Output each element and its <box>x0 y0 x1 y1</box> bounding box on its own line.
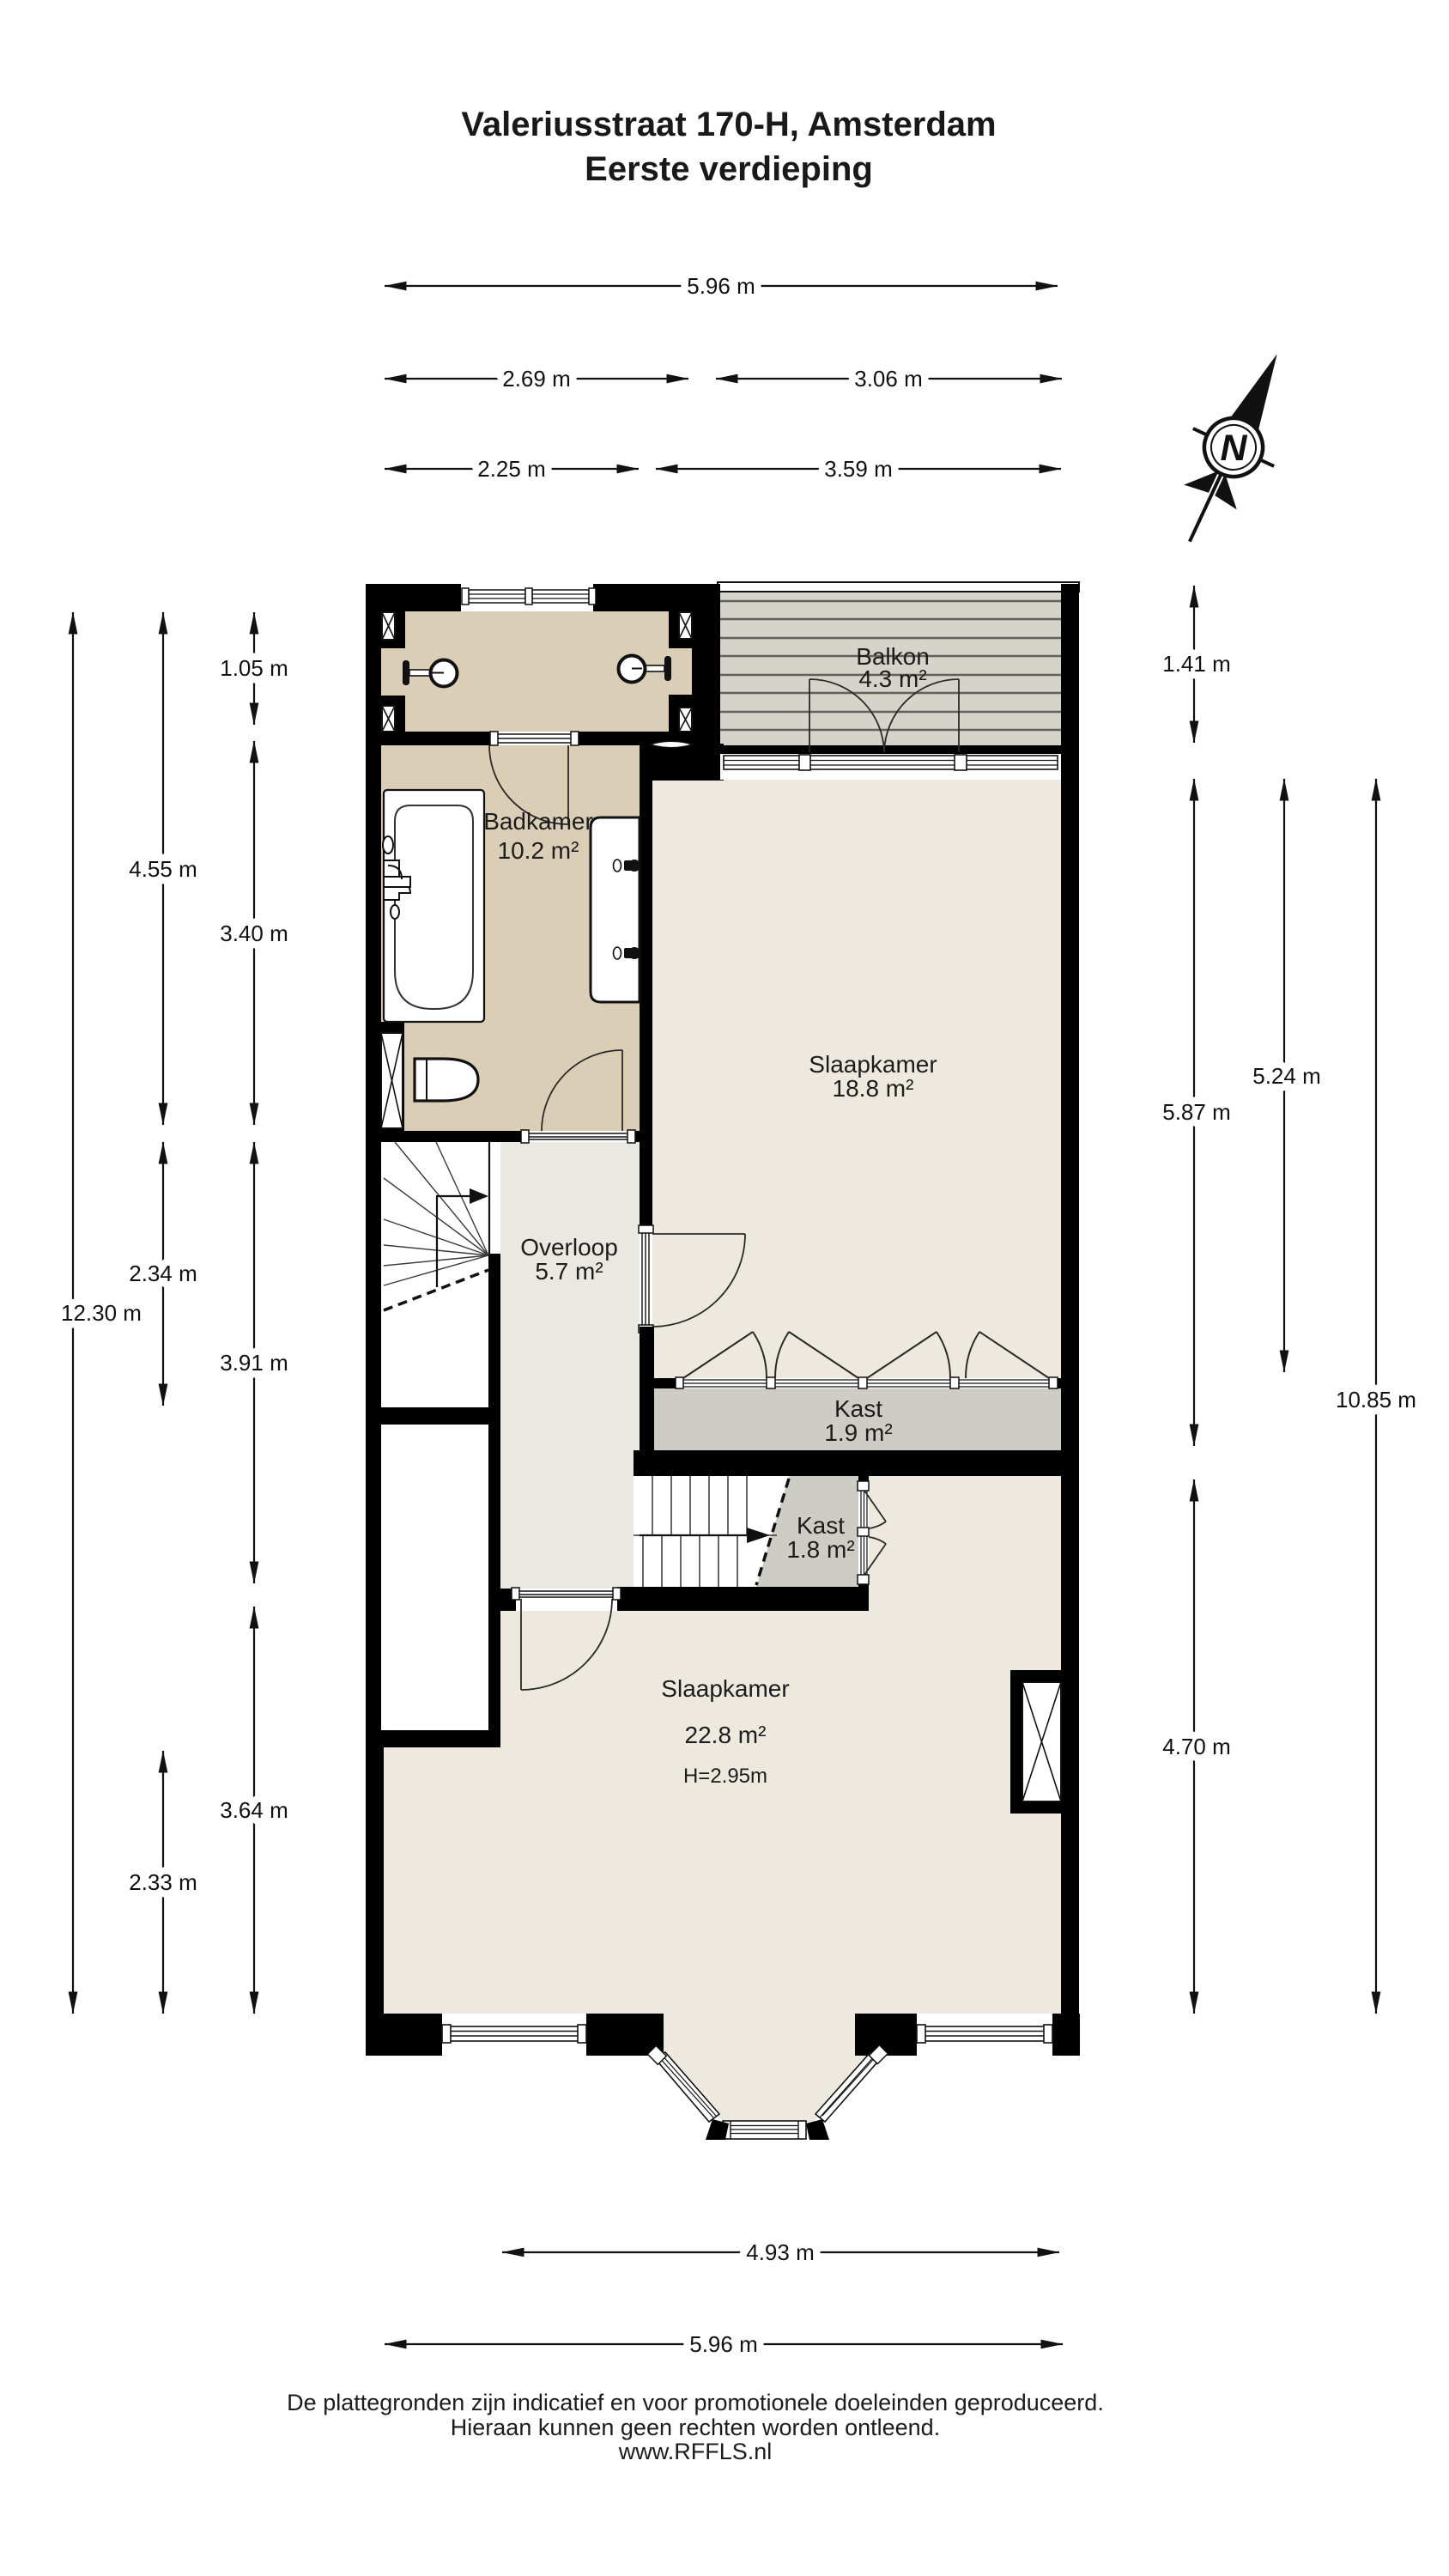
svg-text:5.96 m: 5.96 m <box>689 2331 758 2357</box>
svg-text:2.69 m: 2.69 m <box>502 366 571 392</box>
svg-text:3.59 m: 3.59 m <box>824 456 893 482</box>
svg-text:Badkamer: Badkamer <box>483 808 593 835</box>
svg-text:1.05 m: 1.05 m <box>220 655 288 681</box>
svg-text:3.91 m: 3.91 m <box>220 1350 288 1376</box>
svg-text:3.06 m: 3.06 m <box>854 366 923 392</box>
svg-text:Valeriusstraat 170-H, Amsterda: Valeriusstraat 170-H, Amsterdam <box>461 106 996 143</box>
svg-text:3.64 m: 3.64 m <box>220 1797 288 1823</box>
svg-text:22.8 m²: 22.8 m² <box>685 1722 767 1748</box>
svg-text:Kast: Kast <box>834 1395 882 1422</box>
svg-text:Overloop: Overloop <box>520 1234 618 1261</box>
svg-text:1.41 m: 1.41 m <box>1162 651 1231 677</box>
svg-text:4.3 m²: 4.3 m² <box>858 665 926 692</box>
svg-text:10.85 m: 10.85 m <box>1336 1387 1416 1413</box>
svg-text:1.8 m²: 1.8 m² <box>786 1536 854 1563</box>
svg-text:Hieraan kunnen geen rechten wo: Hieraan kunnen geen rechten worden ontle… <box>451 2415 940 2440</box>
svg-text:Eerste verdieping: Eerste verdieping <box>585 150 873 188</box>
svg-text:10.2 m²: 10.2 m² <box>498 837 579 864</box>
svg-text:1.9 m²: 1.9 m² <box>824 1419 892 1446</box>
svg-text:N: N <box>1220 428 1247 469</box>
svg-text:4.93 m: 4.93 m <box>746 2239 815 2265</box>
svg-text:H=2.95m: H=2.95m <box>683 1765 767 1788</box>
svg-text:Kast: Kast <box>797 1512 845 1539</box>
svg-text:18.8 m²: 18.8 m² <box>833 1075 914 1102</box>
svg-text:4.55 m: 4.55 m <box>129 856 197 882</box>
svg-text:Slaapkamer: Slaapkamer <box>809 1051 937 1078</box>
svg-text:2.33 m: 2.33 m <box>129 1869 197 1895</box>
svg-text:5.96 m: 5.96 m <box>687 273 755 299</box>
svg-text:www.RFFLS.nl: www.RFFLS.nl <box>618 2439 773 2464</box>
svg-text:2.25 m: 2.25 m <box>477 456 546 482</box>
svg-text:12.30 m: 12.30 m <box>61 1300 142 1326</box>
svg-text:Slaapkamer: Slaapkamer <box>661 1675 789 1702</box>
svg-text:4.70 m: 4.70 m <box>1162 1734 1231 1759</box>
svg-text:5.24 m: 5.24 m <box>1252 1063 1321 1089</box>
svg-text:2.34 m: 2.34 m <box>129 1261 197 1286</box>
svg-text:De plattegronden zijn indicati: De plattegronden zijn indicatief en voor… <box>287 2390 1104 2415</box>
svg-text:5.7 m²: 5.7 m² <box>535 1258 603 1285</box>
svg-text:3.40 m: 3.40 m <box>220 920 288 946</box>
svg-text:5.87 m: 5.87 m <box>1162 1099 1231 1125</box>
